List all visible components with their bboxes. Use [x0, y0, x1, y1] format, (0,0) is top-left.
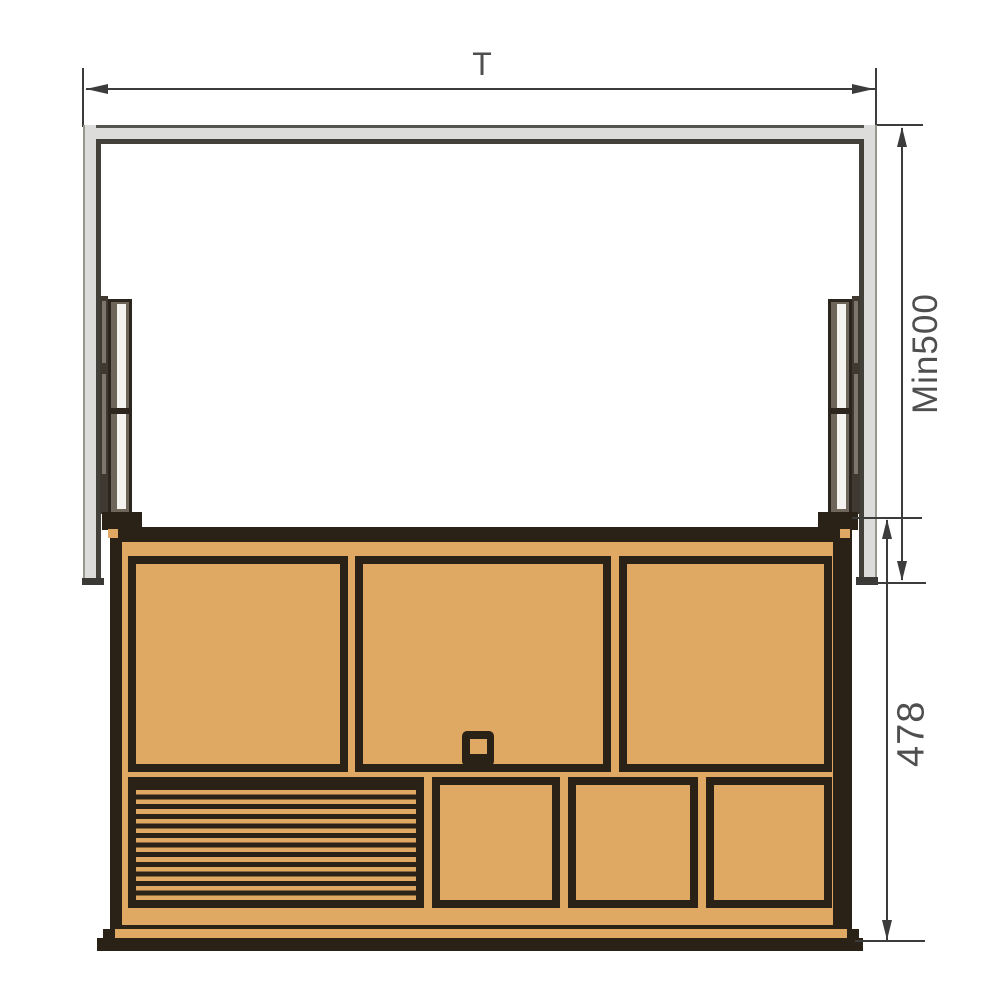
door-panel-left — [128, 556, 348, 772]
left-rail-outer-segment — [102, 301, 106, 363]
cabinet-top-inner-edge — [96, 139, 864, 144]
right-bracket-pin — [840, 529, 850, 538]
h478-dimension-line — [886, 520, 888, 940]
base-rail-bar — [97, 938, 863, 951]
cabinet-left-side-panel — [83, 125, 96, 585]
min-depth-dimension-label: Min500 — [905, 270, 947, 438]
left-rail-inner-bar — [108, 299, 132, 516]
drawer-front-3 — [706, 777, 832, 908]
drawer-front-1 — [432, 777, 560, 908]
base-left-foot — [103, 929, 115, 938]
arrowhead-up-icon — [897, 127, 907, 147]
min500-extension-line-top — [877, 124, 923, 126]
width-dimension-label: T — [440, 46, 524, 82]
h478-extension-line-bottom — [855, 940, 925, 942]
arrowhead-down-icon — [882, 920, 892, 940]
cabinet-right-side-panel — [864, 125, 877, 585]
technical-drawing-canvas: T — [0, 0, 1000, 1000]
arrowhead-left-icon — [86, 84, 108, 94]
width-extension-line-right — [875, 68, 877, 127]
door-panel-right — [619, 556, 832, 772]
left-rail-outer-segment — [102, 374, 106, 474]
width-dimension-line — [86, 88, 875, 90]
base-wood-strip — [103, 929, 859, 938]
drawer-front-2 — [568, 777, 698, 908]
right-rail-outer-bar — [852, 296, 860, 514]
width-extension-line-left — [82, 68, 84, 127]
arrowhead-up-icon — [882, 519, 892, 539]
right-rail-outer-segment — [854, 374, 858, 474]
right-rail-stripe — [837, 304, 846, 509]
base-right-foot — [847, 929, 859, 938]
left-bracket-pin — [108, 529, 118, 538]
cabinet-left-side-bottom-cap — [82, 578, 104, 585]
unit-height-dimension-label: 478 — [890, 688, 934, 780]
min500-dimension-line — [901, 128, 903, 580]
left-rail-divider — [111, 408, 129, 414]
left-rail-outer-bar — [100, 296, 108, 514]
arrowhead-down-icon — [897, 561, 907, 581]
left-rail-stripe — [117, 304, 126, 509]
arrowhead-right-icon — [852, 84, 874, 94]
right-rail-divider — [831, 408, 849, 414]
handle-inset — [470, 739, 487, 754]
right-rail-outer-segment — [854, 301, 858, 363]
slatted-drawer-front — [128, 777, 424, 908]
right-rail-inner-bar — [828, 299, 852, 516]
min500-extension-line-bottom — [857, 582, 926, 584]
